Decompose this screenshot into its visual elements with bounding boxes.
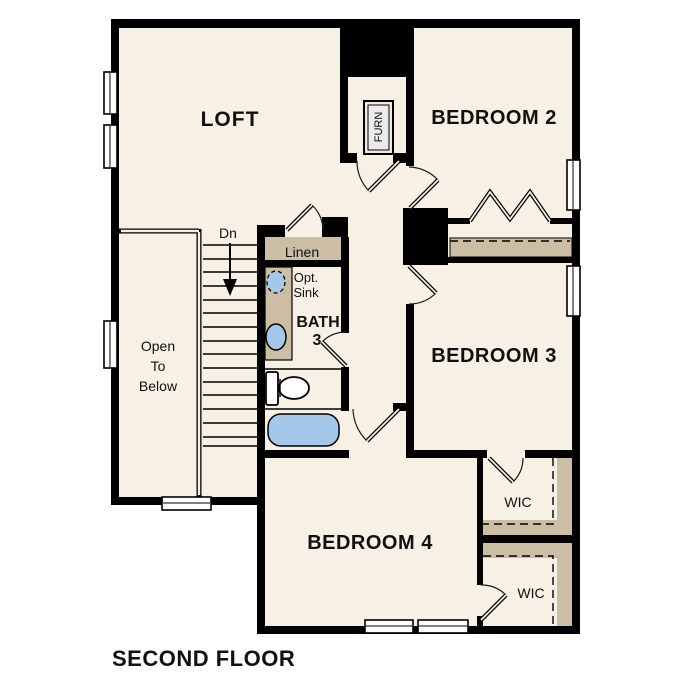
open-to-below-line1: Open (141, 338, 175, 354)
wall-bedroom2-west (406, 19, 414, 166)
bedroom2-label: BEDROOM 2 (431, 107, 557, 129)
sink-basin (266, 324, 286, 350)
bedroom3-label: BEDROOM 3 (431, 345, 557, 367)
wall-wic1-west (477, 458, 483, 535)
window-open-below-bottom (162, 497, 211, 510)
wall-bedroom3-south-left (406, 450, 487, 458)
wic2-shelf-top (483, 543, 557, 558)
window-loft-left-1 (104, 72, 117, 114)
wall-linen-corner-right (322, 217, 348, 237)
window-bedroom4-bottom-1 (365, 620, 413, 633)
plan-title: SECOND FLOOR (112, 646, 295, 671)
wall-furn-left (340, 77, 348, 163)
open-to-below-line3: Below (139, 378, 178, 394)
wic1-shelf-bottom (483, 520, 557, 535)
window-bedroom3-right (567, 266, 580, 316)
opt-sink-label-line2: Sink (293, 285, 319, 300)
floor-plan-page: FURN LOFT BEDROOM 2 BEDROOM 3 BEDROOM 4 … (0, 0, 687, 687)
window-bedroom2-right (567, 160, 580, 210)
wic2-shelf-right (557, 543, 572, 626)
toilet-bowl (279, 377, 309, 399)
furnace-unit: FURN (364, 101, 393, 154)
furnace-label: FURN (373, 112, 385, 143)
toilet-tank (266, 372, 278, 405)
wall-linen-bottom (257, 260, 349, 267)
wic1-label: WIC (504, 494, 531, 510)
wall-closet2-stub-left (448, 218, 470, 224)
wic1-shelf-right (557, 458, 572, 535)
wall-center-vertical (257, 225, 265, 634)
floor-plan-drawing: FURN LOFT BEDROOM 2 BEDROOM 3 BEDROOM 4 … (0, 0, 687, 687)
wall-closet2-stub-right (550, 218, 572, 224)
wall-wic2-west (477, 543, 483, 585)
bathtub-basin (268, 414, 339, 446)
wall-bedroom3-south-right (525, 450, 572, 458)
opt-sink-label-line1: Opt. (294, 270, 319, 285)
wall-bedroom4-top (257, 450, 349, 458)
wall-wic-divider (477, 535, 580, 543)
bath-label-line1: BATH (296, 314, 339, 331)
wic2-label: WIC (517, 585, 544, 601)
window-open-below-left (104, 321, 117, 368)
open-to-below-line2: To (151, 358, 166, 374)
stairs-down-label: Dn (219, 225, 237, 241)
wall-block-hall (403, 208, 448, 265)
wall-closet2-bottom (414, 257, 572, 263)
wall-block-top-center (340, 19, 410, 77)
optional-sink-basin (267, 271, 285, 293)
wall-linen-stub-left (257, 225, 285, 237)
bath-label-line2: 3 (313, 332, 322, 349)
wall-bedroom3-west (406, 304, 414, 458)
wall-bath-east-upper (341, 237, 349, 333)
window-bedroom4-bottom-2 (418, 620, 468, 633)
loft-label: LOFT (201, 108, 260, 131)
linen-label: Linen (285, 244, 319, 260)
wall-bath-east-lower (341, 367, 349, 411)
window-loft-left-2 (104, 125, 117, 168)
bathtub (268, 414, 339, 446)
bedroom4-label: BEDROOM 4 (307, 532, 433, 554)
wall-furn-stub-left (340, 153, 357, 163)
